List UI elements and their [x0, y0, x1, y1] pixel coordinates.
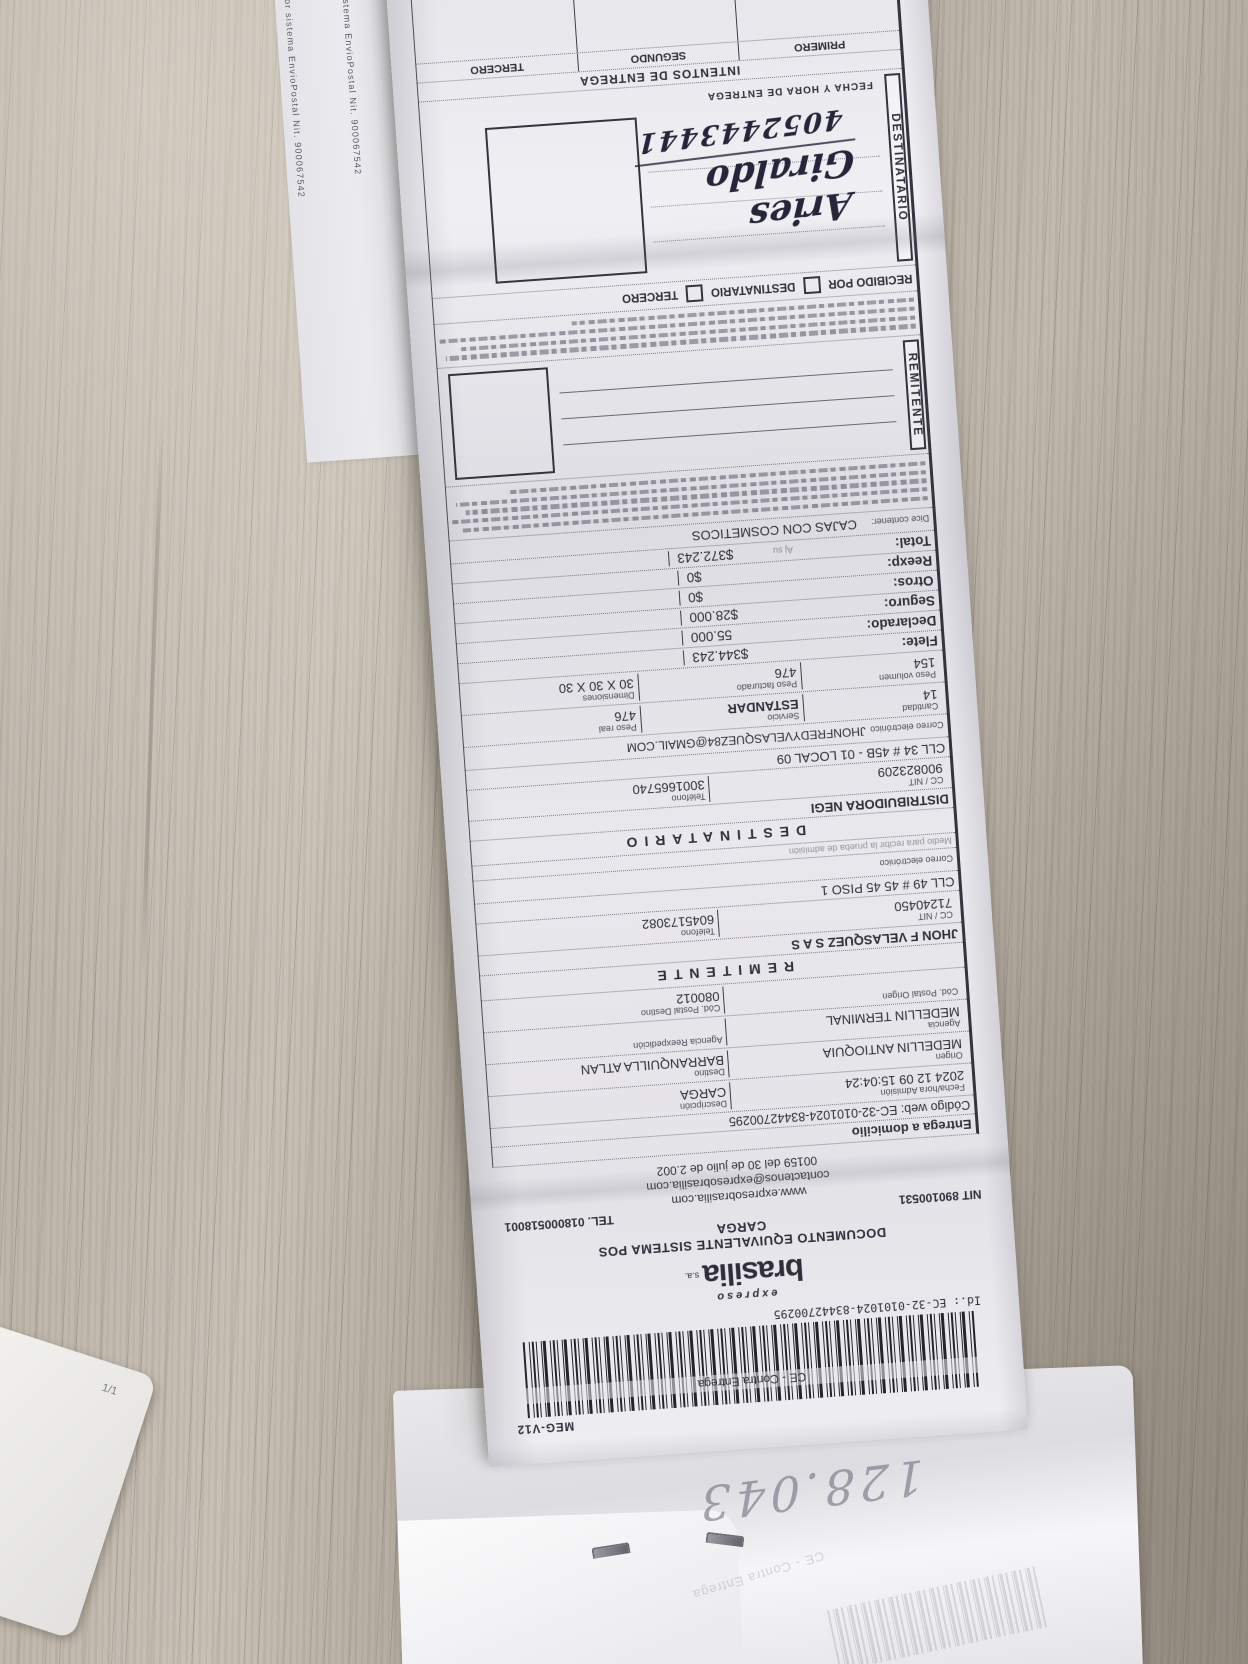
total-note: Aj su: [773, 545, 794, 556]
tercero-checkbox: [685, 284, 703, 302]
column-rule: [668, 551, 670, 566]
brand-sa: s.a.: [684, 1270, 699, 1281]
delivery-stamp-box: [485, 117, 648, 283]
total-value: $372.243: [677, 544, 764, 565]
photo-scene: 1/1 CE - Contra Entrega 128.043 por sist…: [0, 0, 1248, 1664]
recibido-por-label: RECIBIDO POR: [828, 272, 913, 290]
shipping-receipt: MEG-V12 CE - Contra Entrega Id.: EC-32-0…: [386, 0, 1028, 1467]
edge-system-text: por sistema EnvioPostal Nit. 900067542: [282, 0, 324, 452]
wood-grain-streak: [140, 420, 164, 980]
contents-label: Dice contener:: [871, 513, 930, 527]
brand-name: brasilia: [702, 1252, 805, 1294]
waybill-form: Entrega a domicilio Código web: EC-32-01…: [411, 0, 980, 1168]
sender-signature-box: [448, 368, 555, 481]
column-rule: [679, 590, 681, 605]
fecha-entrega-label: FECHA Y HORA DE ENTREGA: [706, 78, 873, 101]
column-rule: [683, 650, 685, 665]
destinatario-option-label: DESTINATARIO: [711, 280, 796, 298]
received-by-section: DESTINATARIO Aries Giraldo 4052443441 FE…: [419, 67, 916, 297]
tercero-option-label: TERCERO: [622, 288, 679, 304]
column-rule: [677, 570, 679, 585]
received-write-area: Aries Giraldo 4052443441 FECHA Y HORA DE…: [634, 70, 895, 283]
destinatario-checkbox: [803, 276, 821, 294]
sender-email-label: Correo electrónico: [879, 854, 953, 869]
column-rule: [680, 610, 682, 625]
recipient-email-label: Correo electrónico: [870, 719, 944, 734]
envelope-fold: [397, 1509, 743, 1664]
signature-lines: [547, 337, 908, 479]
column-rule: [681, 630, 683, 645]
page-count-label: 1/1: [100, 1382, 118, 1398]
edge-system-text: Sistema EnvioPostal Nit. 900067542: [340, 0, 382, 448]
page-count-card: 1/1: [0, 1312, 157, 1640]
receipt-content: MEG-V12 CE - Contra Entrega Id.: EC-32-0…: [386, 0, 1028, 1467]
